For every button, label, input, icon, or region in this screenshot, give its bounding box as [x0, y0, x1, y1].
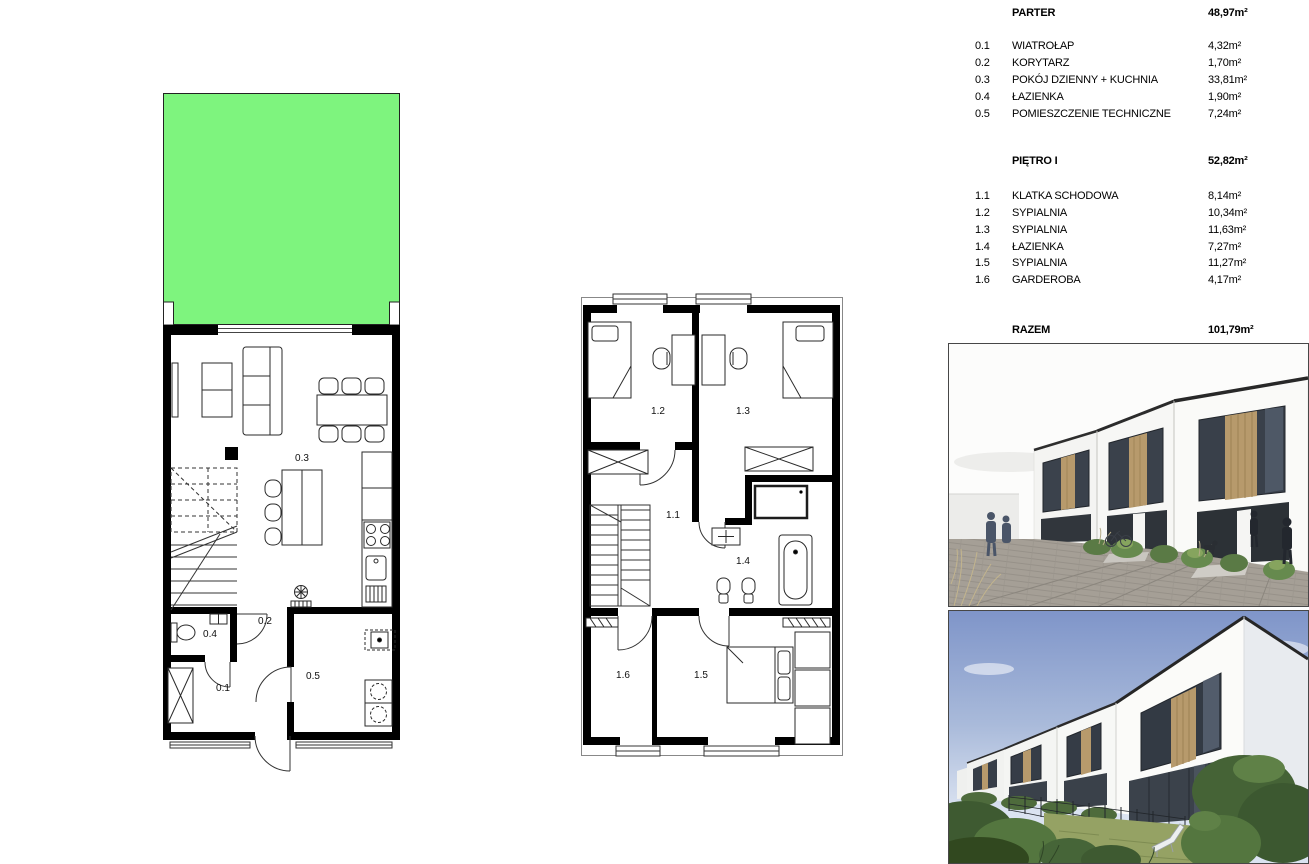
bed-13 [783, 322, 833, 398]
legend-section-header: PARTER 48,97m² [975, 7, 1287, 20]
wardrobe-landing [588, 450, 648, 474]
legend-row: 0.4 ŁAZIENKA 1,90m² [975, 91, 1287, 104]
dining-set [317, 378, 387, 442]
legend-row: 0.3 POKÓJ DZIENNY + KUCHNIA 33,81m² [975, 74, 1287, 87]
room-name: POKÓJ DZIENNY + KUCHNIA [1012, 74, 1208, 87]
legend-row: 1.3 SYPIALNIA 11,63m² [975, 224, 1287, 237]
section-title: PIĘTRO I [1012, 155, 1208, 168]
tv-icon [172, 363, 178, 417]
room-label-03: 0.3 [295, 453, 309, 464]
terrace-door [218, 329, 352, 333]
room-label-13: 1.3 [736, 406, 750, 417]
room-label-01: 0.1 [216, 683, 230, 694]
room-number: 0.4 [975, 91, 1012, 104]
room-number: 0.1 [975, 40, 1012, 53]
garden-notch-left [164, 302, 174, 325]
room-name: GARDEROBA [1012, 274, 1208, 287]
toilet-2-icon [742, 578, 755, 603]
bathtub-icon [779, 535, 812, 605]
legend-row: 1.5 SYPIALNIA 11,27m² [975, 257, 1287, 270]
room-name: ŁAZIENKA [1012, 241, 1208, 254]
room-name: SYPIALNIA [1012, 224, 1208, 237]
room-number: 1.2 [975, 207, 1012, 220]
wardrobe-16 [586, 618, 618, 627]
section-title: PARTER [1012, 7, 1208, 20]
washbasin-icon [210, 614, 227, 624]
room-label-04: 0.4 [203, 629, 217, 640]
section-area: 48,97m² [1208, 7, 1248, 20]
room-name: ŁAZIENKA [1012, 91, 1208, 104]
interior-walls [163, 607, 400, 740]
sideboard [202, 363, 232, 417]
room-area: 11,63m² [1208, 224, 1246, 237]
room-number: 1.5 [975, 257, 1012, 270]
room-name: SYPIALNIA [1012, 207, 1208, 220]
room-label-16: 1.6 [616, 670, 630, 681]
chair-13 [730, 348, 747, 369]
legend-row: 0.2 KORYTARZ 1,70m² [975, 57, 1287, 70]
legend-row: 1.4 ŁAZIENKA 7,27m² [975, 241, 1287, 254]
room-area: 8,14m² [1208, 190, 1241, 203]
room-area: 4,32m² [1208, 40, 1241, 53]
dryer-icon [365, 703, 392, 726]
legend-row: 1.6 GARDEROBA 4,17m² [975, 274, 1287, 287]
toilet-icon [171, 623, 195, 642]
legend-row: 1.2 SYPIALNIA 10,34m² [975, 207, 1287, 220]
room-name: SYPIALNIA [1012, 257, 1208, 270]
chair-12 [653, 348, 670, 369]
room-number: 1.4 [975, 241, 1012, 254]
bed-15 [727, 647, 793, 703]
room-area: 7,24m² [1208, 108, 1241, 121]
legend-row: 1.1 KLATKA SCHODOWA 8,14m² [975, 190, 1287, 203]
bathroom-sink-icon [712, 528, 740, 545]
room-number: 0.5 [975, 108, 1012, 121]
staircase-ground [171, 447, 238, 610]
desk-13 [702, 335, 725, 385]
bed-12 [588, 322, 631, 398]
kitchen-island [265, 470, 322, 545]
legend-row: 0.5 POMIESZCZENIE TECHNICZNE 7,24m² [975, 108, 1287, 121]
room-number: 1.3 [975, 224, 1012, 237]
desk-12 [672, 335, 695, 385]
toilet-1-icon [717, 578, 730, 603]
legend-total-row: RAZEM 101,79m² [975, 324, 1287, 337]
staircase-first [590, 505, 650, 606]
water-heater-icon [365, 630, 395, 650]
area-legend: PARTER 48,97m² 0.1 WIATROŁAP 4,32m² 0.2 … [975, 0, 1295, 340]
total-area: 101,79m² [1208, 324, 1254, 337]
room-number: 0.2 [975, 57, 1012, 70]
stair-newel [225, 447, 238, 460]
room-name: KORYTARZ [1012, 57, 1208, 70]
window-sills [170, 742, 392, 748]
shower-icon [755, 486, 807, 518]
wardrobe-01 [168, 668, 193, 723]
room-area: 1,90m² [1208, 91, 1241, 104]
room-name: WIATROŁAP [1012, 40, 1208, 53]
heating-manifold-icon [291, 586, 311, 608]
ground-floor-plan: 0.3 0.2 0.4 0.1 0.5 [160, 90, 406, 780]
first-floor-plan: 1.2 1.3 1.1 1.4 1.6 1.5 [580, 290, 845, 770]
legend-section-header: PIĘTRO I 52,82m² [975, 155, 1287, 168]
room-label-12: 1.2 [651, 406, 665, 417]
room-area: 1,70m² [1208, 57, 1241, 70]
room-label-15: 1.5 [694, 670, 708, 681]
photo-garden-view [948, 610, 1309, 864]
floor-plan-sheet: 0.3 0.2 0.4 0.1 0.5 [0, 0, 1309, 864]
room-label-02: 0.2 [258, 616, 272, 627]
room-area: 4,17m² [1208, 274, 1241, 287]
room-area: 33,81m² [1208, 74, 1247, 87]
room-area: 11,27m² [1208, 257, 1246, 270]
room-area: 10,34m² [1208, 207, 1247, 220]
room-number: 0.3 [975, 74, 1012, 87]
kitchen-counter [362, 452, 392, 607]
total-label: RAZEM [1012, 324, 1208, 337]
sofa [243, 347, 282, 435]
room-area: 7,27m² [1208, 241, 1241, 254]
room-name: POMIESZCZENIE TECHNICZNE [1012, 108, 1208, 121]
room-label-05: 0.5 [306, 671, 320, 682]
room-number: 1.1 [975, 190, 1012, 203]
legend-row: 0.1 WIATROŁAP 4,32m² [975, 40, 1287, 53]
wardrobe-13 [745, 447, 813, 471]
photo-street-view [948, 343, 1309, 607]
room-label-11: 1.1 [666, 510, 680, 521]
garden-area [164, 94, 400, 326]
room-number: 1.6 [975, 274, 1012, 287]
room-label-14: 1.4 [736, 556, 750, 567]
room-name: KLATKA SCHODOWA [1012, 190, 1208, 203]
garden-notch-right [390, 302, 400, 325]
washer-icon [365, 680, 392, 703]
section-area: 52,82m² [1208, 155, 1248, 168]
